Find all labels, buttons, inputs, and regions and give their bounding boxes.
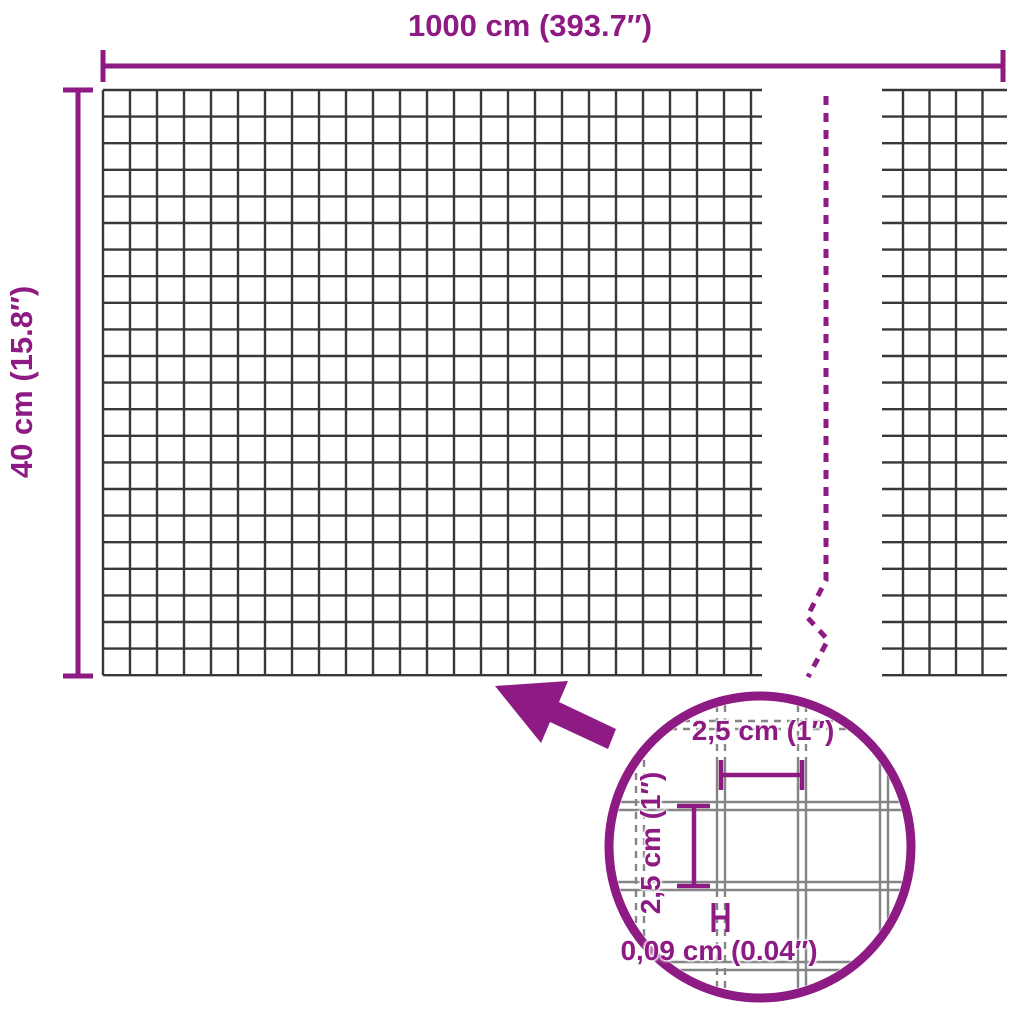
product-dimension-diagram: 1000 cm (393.7″) 40 cm (15.8″) 2,5 cm (1… [0, 0, 1024, 1024]
arrow-icon [495, 681, 616, 749]
height-dimension-line [63, 90, 93, 676]
zoom-cell-height-label: 2,5 cm (1″) [636, 753, 670, 933]
zoom-cell-width-label: 2,5 cm (1″) [648, 716, 878, 747]
diagram-graphics [0, 0, 1024, 1024]
mesh-grid-right [882, 90, 1007, 675]
height-dimension-label: 40 cm (15.8″) [5, 102, 45, 662]
width-dimension-line [103, 50, 1003, 82]
wire-thickness-label: 0,09 cm (0.04″) [604, 936, 834, 967]
break-line [807, 96, 828, 677]
mesh-grid-left [103, 90, 762, 675]
width-dimension-label: 1000 cm (393.7″) [80, 9, 980, 43]
